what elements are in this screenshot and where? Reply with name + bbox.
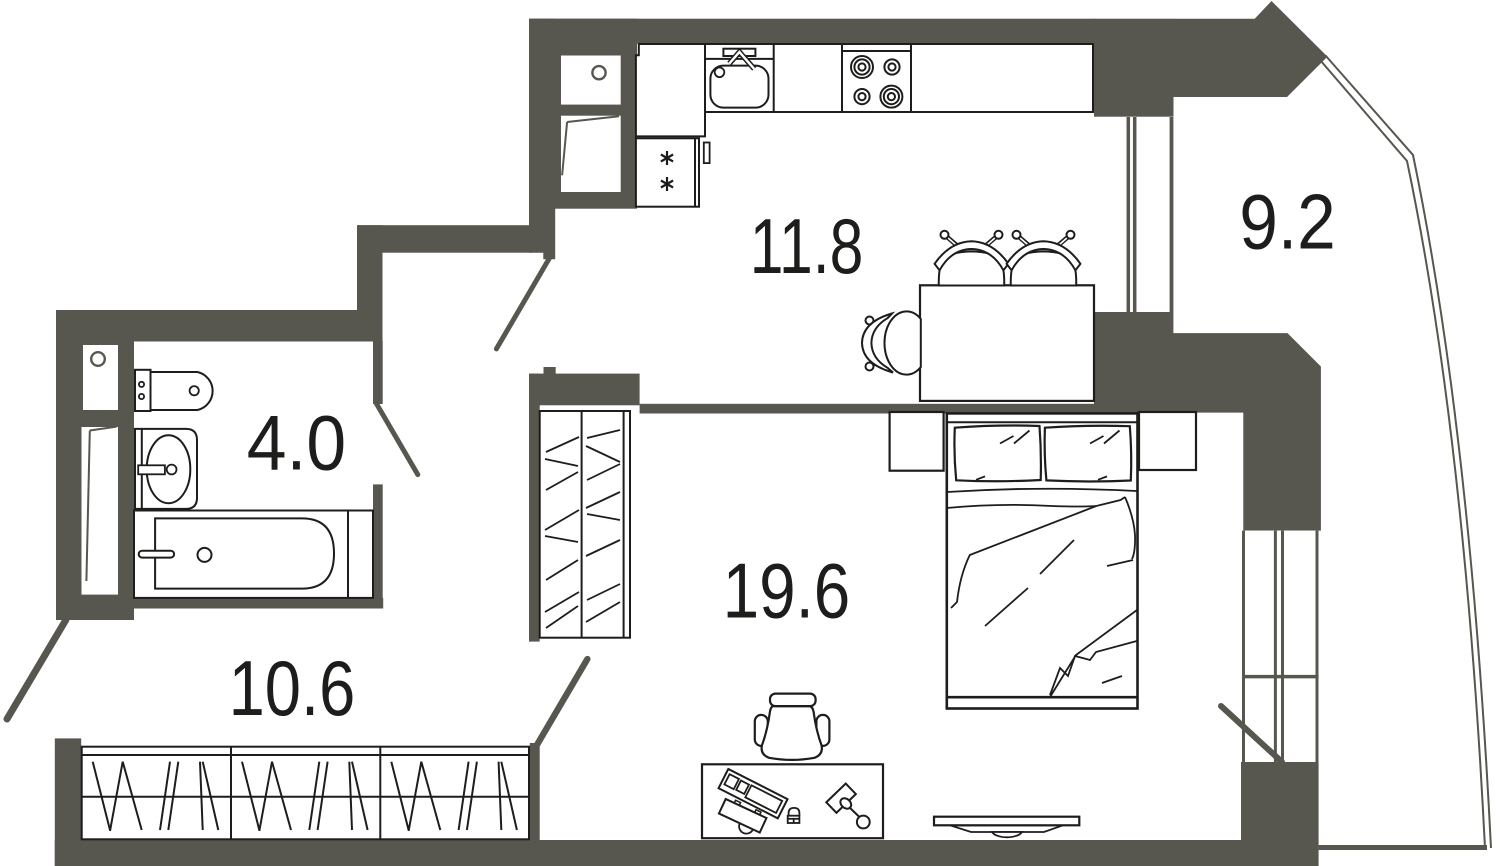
svg-text:19.6: 19.6: [723, 547, 851, 635]
svg-text:11.8: 11.8: [750, 202, 864, 290]
svg-text:10.6: 10.6: [229, 644, 356, 732]
svg-text:9.2: 9.2: [1239, 177, 1336, 265]
svg-text:4.0: 4.0: [247, 398, 346, 486]
